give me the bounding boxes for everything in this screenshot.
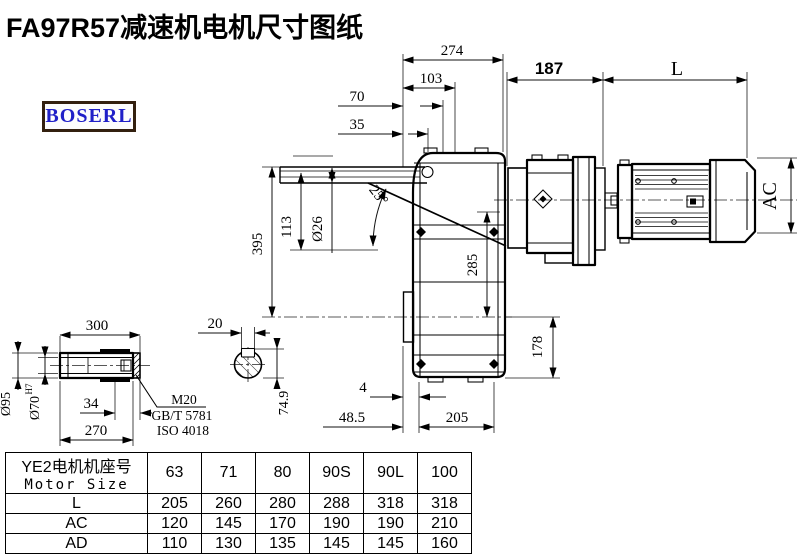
table-cell: 318 bbox=[418, 494, 472, 514]
motor-fins bbox=[635, 176, 708, 227]
dim-dia70: Ø70 bbox=[28, 396, 43, 420]
dim-35: 35 bbox=[350, 117, 365, 133]
table-cell: 110 bbox=[148, 534, 202, 554]
column-header: 90L bbox=[364, 453, 418, 494]
table-cell: 135 bbox=[256, 534, 310, 554]
dim-300: 300 bbox=[86, 318, 109, 334]
center-lines bbox=[50, 200, 797, 383]
dim-285: 285 bbox=[465, 254, 481, 277]
label-thread-m20: M20 bbox=[171, 392, 197, 407]
header-motor-size: YE2电机机座号 Motor Size bbox=[6, 453, 148, 494]
dim-103: 103 bbox=[420, 71, 443, 87]
dim-395: 395 bbox=[250, 233, 266, 256]
dimension-drawing: 274 103 70 35 187 L AC 395 113 Ø26 25° 2… bbox=[0, 0, 800, 450]
table-cell: 120 bbox=[148, 514, 202, 534]
r57-gear-unit-view bbox=[508, 155, 617, 265]
dim-270: 270 bbox=[85, 423, 108, 439]
dim-L: L bbox=[671, 58, 683, 80]
dim-178: 178 bbox=[530, 336, 546, 359]
dim-70: 70 bbox=[350, 89, 365, 105]
drawing-page: 274 103 70 35 187 L AC 395 113 Ø26 25° 2… bbox=[0, 0, 800, 555]
dim-48-5: 48.5 bbox=[339, 410, 365, 426]
row-label: AC bbox=[6, 514, 148, 534]
dim-dia70-tolerance: H7 bbox=[24, 383, 34, 394]
bolt-marker bbox=[416, 359, 426, 369]
table-row: AD 110 130 135 145 145 160 bbox=[6, 534, 472, 554]
label-gb-standard: GB/T 5781 bbox=[152, 408, 213, 423]
dim-4: 4 bbox=[359, 380, 367, 396]
dim-34: 34 bbox=[84, 396, 100, 412]
column-header: 100 bbox=[418, 453, 472, 494]
table-cell: 210 bbox=[418, 514, 472, 534]
dim-205: 205 bbox=[446, 410, 469, 426]
torque-arm-hole bbox=[422, 167, 433, 178]
table-cell: 190 bbox=[364, 514, 418, 534]
table-cell: 280 bbox=[256, 494, 310, 514]
table-cell: 260 bbox=[202, 494, 256, 514]
table-cell: 160 bbox=[418, 534, 472, 554]
column-header: 71 bbox=[202, 453, 256, 494]
header-motor-size-en: Motor Size bbox=[6, 477, 147, 493]
dim-angle-25: 25° bbox=[365, 182, 391, 208]
brand-logo: BOSERL bbox=[42, 101, 136, 132]
dim-dia95: Ø95 bbox=[0, 392, 14, 416]
header-motor-size-cn: YE2电机机座号 bbox=[6, 453, 147, 477]
table-cell: 145 bbox=[310, 534, 364, 554]
dim-20: 20 bbox=[208, 316, 223, 332]
dim-187: 187 bbox=[535, 59, 563, 78]
motor-size-table: YE2电机机座号 Motor Size 63 71 80 90S 90L 100… bbox=[5, 452, 472, 554]
table-cell: 205 bbox=[148, 494, 202, 514]
dim-74-9: 74.9 bbox=[277, 391, 292, 416]
table-row: AC 120 145 170 190 190 210 bbox=[6, 514, 472, 534]
table-row: L 205 260 280 288 318 318 bbox=[6, 494, 472, 514]
column-header: 63 bbox=[148, 453, 202, 494]
fan-cover bbox=[710, 160, 755, 242]
bolt-marker bbox=[416, 227, 426, 237]
table-cell: 130 bbox=[202, 534, 256, 554]
table-cell: 288 bbox=[310, 494, 364, 514]
table-cell: 145 bbox=[202, 514, 256, 534]
dim-AC: AC bbox=[759, 182, 781, 210]
motor-side-view bbox=[611, 160, 755, 243]
dim-274: 274 bbox=[441, 43, 464, 59]
table-header-row: YE2电机机座号 Motor Size 63 71 80 90S 90L 100 bbox=[6, 453, 472, 494]
page-title: FA97R57减速机电机尺寸图纸 bbox=[6, 6, 363, 45]
dim-dia26: Ø26 bbox=[310, 216, 326, 242]
row-label: L bbox=[6, 494, 148, 514]
column-header: 80 bbox=[256, 453, 310, 494]
table-cell: 318 bbox=[364, 494, 418, 514]
label-iso-standard: ISO 4018 bbox=[157, 423, 209, 438]
table-cell: 145 bbox=[364, 534, 418, 554]
table-cell: 190 bbox=[310, 514, 364, 534]
dim-113: 113 bbox=[279, 216, 295, 238]
column-header: 90S bbox=[310, 453, 364, 494]
table-cell: 170 bbox=[256, 514, 310, 534]
row-label: AD bbox=[6, 534, 148, 554]
